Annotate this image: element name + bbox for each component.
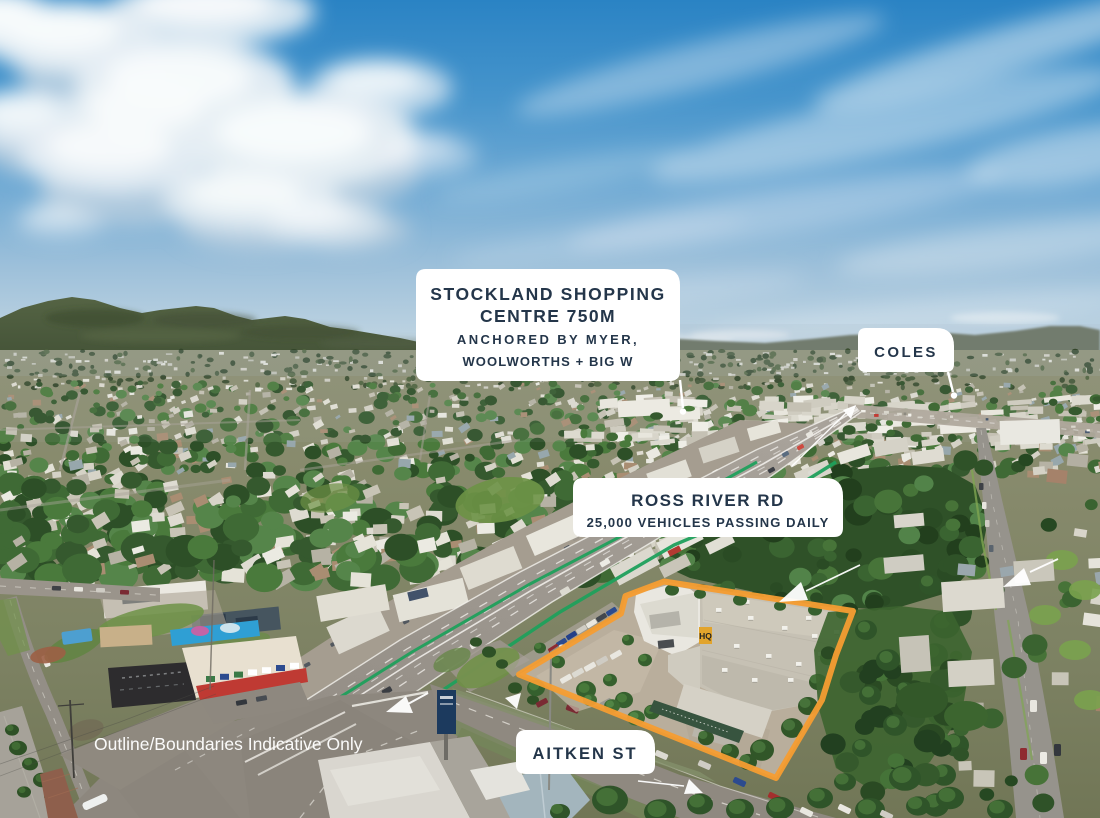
svg-text:ROSS RIVER RD: ROSS RIVER RD — [631, 491, 785, 510]
svg-text:AITKEN ST: AITKEN ST — [532, 745, 637, 763]
svg-text:HQ: HQ — [699, 631, 712, 641]
svg-text:CENTRE 750M: CENTRE 750M — [480, 306, 616, 326]
svg-text:25,000 VEHICLES PASSING DAILY: 25,000 VEHICLES PASSING DAILY — [587, 515, 830, 530]
svg-text:STOCKLAND SHOPPING: STOCKLAND SHOPPING — [430, 284, 666, 304]
svg-text:Outline/Boundaries Indicative: Outline/Boundaries Indicative Only — [94, 734, 363, 754]
svg-text:COLES: COLES — [874, 344, 938, 361]
svg-text:ANCHORED BY MYER,: ANCHORED BY MYER, — [457, 332, 639, 347]
svg-text:WOOLWORTHS + BIG W: WOOLWORTHS + BIG W — [462, 354, 633, 369]
